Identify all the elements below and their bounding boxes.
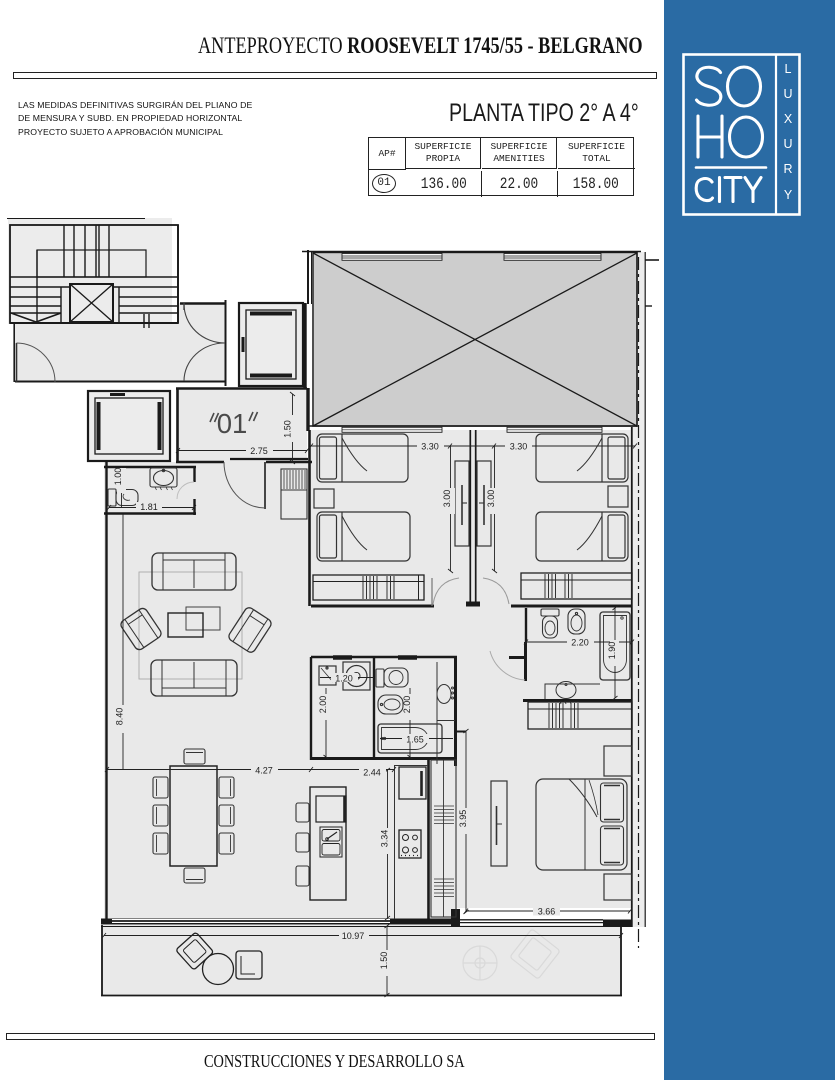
svg-text:2.00: 2.00 (402, 696, 412, 714)
svg-text:2.00: 2.00 (318, 696, 328, 714)
svg-text:8.40: 8.40 (115, 708, 125, 726)
svg-text:1.50: 1.50 (283, 420, 293, 438)
svg-text:01: 01 (217, 408, 248, 439)
svg-text:3.00: 3.00 (442, 490, 452, 508)
svg-text:3.34: 3.34 (380, 830, 390, 848)
svg-text:2.75: 2.75 (250, 446, 268, 456)
svg-text:3.00: 3.00 (486, 490, 496, 508)
svg-text:1.81: 1.81 (140, 502, 158, 512)
svg-text:3.66: 3.66 (538, 907, 556, 917)
svg-text:3.30: 3.30 (421, 442, 439, 452)
svg-text:4.27: 4.27 (255, 766, 273, 776)
svg-text:2.20: 2.20 (571, 638, 589, 648)
svg-text:2.44: 2.44 (363, 768, 381, 778)
svg-text:3.30: 3.30 (510, 442, 528, 452)
svg-text:1.50: 1.50 (379, 952, 389, 970)
svg-text:1.00: 1.00 (113, 468, 123, 486)
svg-text:10.97: 10.97 (342, 931, 365, 941)
svg-text:1.20: 1.20 (335, 674, 353, 684)
svg-text:1.90: 1.90 (607, 642, 617, 660)
svg-text:3.95: 3.95 (458, 810, 468, 828)
svg-text:1.65: 1.65 (406, 735, 424, 745)
